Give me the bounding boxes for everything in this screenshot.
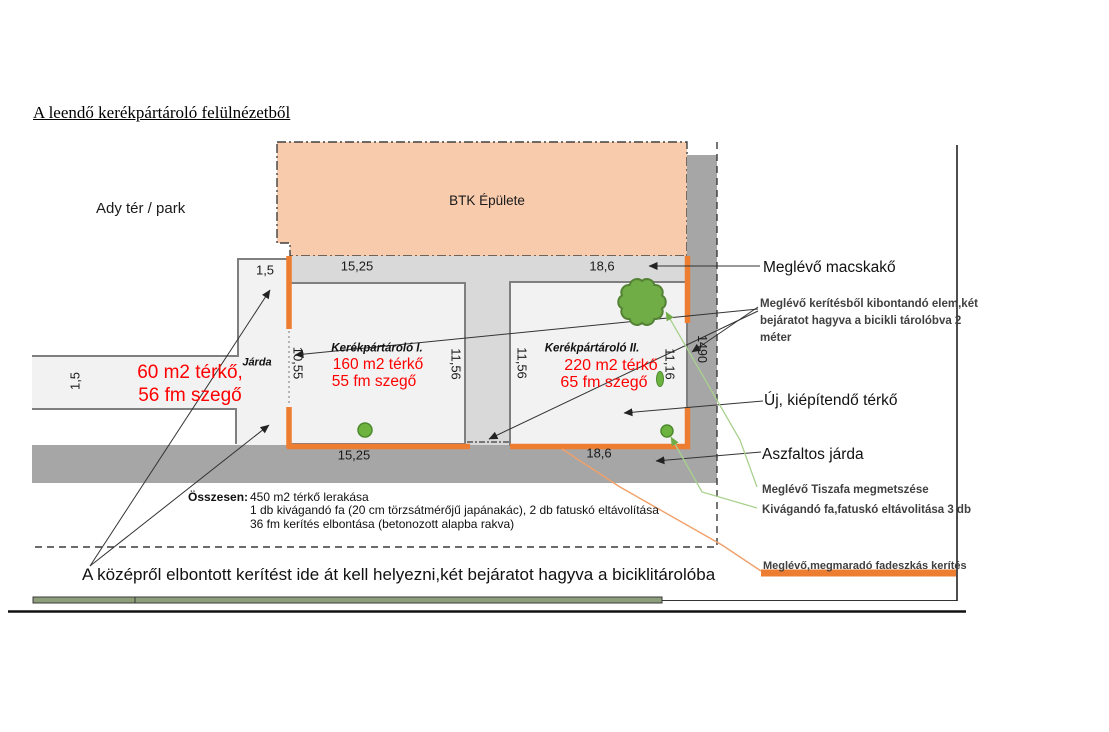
storage2-szego: 65 fm szegő bbox=[560, 374, 647, 392]
storage2-terko: 220 m2 térkő bbox=[564, 357, 657, 375]
sidewalk-borders bbox=[32, 409, 236, 444]
dim-s2-bottom: 18,6 bbox=[586, 447, 611, 462]
storage1-szego: 55 fm szegő bbox=[332, 373, 416, 391]
dim-s2-left: 11,56 bbox=[514, 347, 529, 379]
annotation-fadeszkas: Meglévő,megmaradó fadeszkás kerítés bbox=[763, 558, 967, 575]
building-label: BTK Épülete bbox=[449, 193, 525, 209]
left-red-note: 60 m2 térkő, 56 fm szegő bbox=[137, 361, 243, 407]
dim-s1-left: 10,55 bbox=[290, 347, 305, 380]
dim-right-strip: 1490 bbox=[695, 335, 709, 363]
annotation-uj-terko: Új, kiépítendő térkő bbox=[764, 392, 898, 410]
jarda-label: Járda bbox=[242, 357, 271, 370]
asphalt-strip bbox=[32, 445, 717, 483]
storage1-terko: 160 m2 térkő bbox=[333, 356, 423, 374]
annotation-kerites-line1: Meglévő kerítésből kibontandó elem,két bbox=[760, 296, 978, 313]
dim-jarda-top: 1,5 bbox=[256, 264, 274, 279]
dim-s1-bottom: 15,25 bbox=[338, 449, 371, 464]
annotation-macskako: Meglévő macskakő bbox=[763, 259, 896, 277]
storage1-name: Kerékpártároló I. bbox=[331, 342, 422, 355]
bottom-note: A középről elbontott kerítést ide át kel… bbox=[82, 565, 715, 585]
summary-line2: 1 db kivágandó fa (20 cm törzsátmérőjű j… bbox=[250, 504, 659, 517]
annotation-kerites-line2: bejáratot hagyva a bicikli tárolóbva 2 bbox=[760, 313, 961, 330]
bottom-green-bar bbox=[33, 597, 662, 603]
annotation-kerites-line3: méter bbox=[760, 330, 791, 347]
dim-s1-right: 11,56 bbox=[448, 348, 463, 380]
annotation-kivagando: Kivágandó fa,fatuskó eltávolitása 3 db bbox=[762, 502, 971, 519]
annotation-aszfalt: Aszfaltos járda bbox=[762, 446, 864, 464]
left-red-line2: 56 fm szegő bbox=[137, 384, 243, 407]
gap-strip bbox=[466, 282, 510, 445]
annotation-tiszafa: Meglévő Tiszafa megmetszése bbox=[762, 482, 929, 499]
jarda-strip bbox=[237, 258, 290, 445]
site-plan-canvas: A leendő kerékpártároló felülnézetből Ad… bbox=[0, 0, 1109, 732]
left-red-line1: 60 m2 térkő, bbox=[137, 361, 243, 384]
tree-storage2 bbox=[661, 425, 673, 437]
park-label: Ady tér / park bbox=[96, 200, 185, 217]
dim-s2-right: 11,16 bbox=[662, 348, 677, 380]
tree-storage1 bbox=[358, 423, 372, 437]
big-tree bbox=[618, 279, 666, 325]
dim-sidewalk: 1,5 bbox=[69, 372, 84, 390]
summary-label: Összesen: bbox=[188, 491, 248, 504]
right-strip-area bbox=[687, 155, 717, 483]
page-title: A leendő kerékpártároló felülnézetből bbox=[33, 103, 290, 123]
dim-s2-top: 18,6 bbox=[589, 260, 614, 275]
summary-line3: 36 fm kerítés elbontása (betonozott alap… bbox=[250, 518, 514, 531]
dim-s1-top: 15,25 bbox=[341, 260, 374, 275]
storage2-name: Kerékpártároló II. bbox=[545, 342, 640, 355]
